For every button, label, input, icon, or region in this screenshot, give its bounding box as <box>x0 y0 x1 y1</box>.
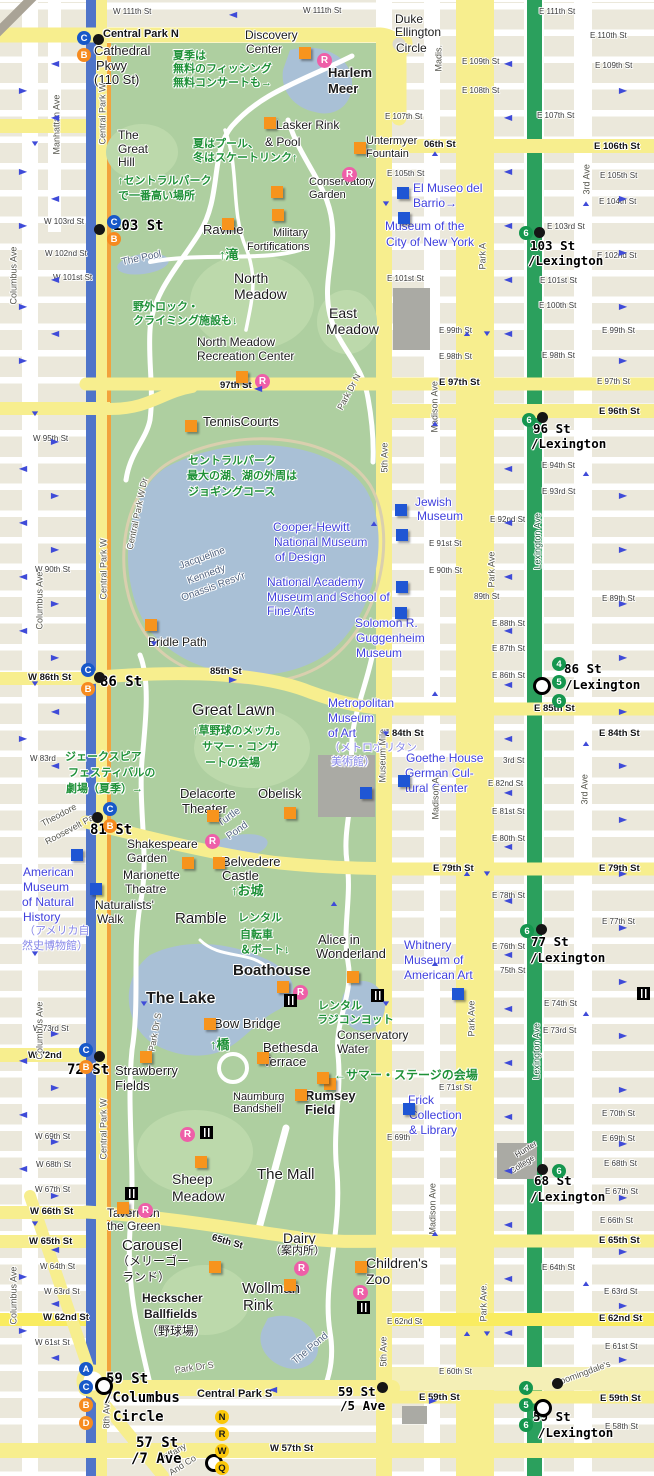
label-lexington-ave: Lexington Ave <box>533 1023 542 1079</box>
one-way-arrow-icon: ◀ <box>504 843 512 851</box>
one-way-arrow-icon: ▲ <box>430 420 441 428</box>
one-way-arrow-icon: ◀ <box>19 573 27 581</box>
one-way-arrow-icon: ◀ <box>504 735 512 743</box>
one-way-arrow-icon: ▶ <box>619 816 627 824</box>
label-boathouse: Boathouse <box>233 963 311 978</box>
subway-bullet-b: B <box>103 819 117 833</box>
one-way-arrow-icon: ▼ <box>381 730 392 738</box>
one-way-arrow-icon: ◀ <box>51 708 59 716</box>
poi-marker-icon <box>257 1052 269 1064</box>
label-museum: Museum <box>328 712 374 724</box>
label-label: 自転車 <box>240 930 273 941</box>
label-the-green: the Green <box>107 1220 160 1232</box>
museum-marker-icon <box>396 581 408 593</box>
label-jewish: Jewish <box>415 496 452 508</box>
label-american-art: American Art <box>404 969 473 981</box>
label-w-63rd-st: W 63rd St <box>44 1288 80 1296</box>
one-way-arrow-icon: ▶ <box>19 357 27 365</box>
label-conservatory: Conservatory <box>337 1029 408 1041</box>
one-way-arrow-icon: ▶ <box>19 303 27 311</box>
label-e-105th-st: E 105th St <box>387 170 424 178</box>
label-national-academy: National Academy <box>267 576 364 588</box>
label-meer: Meer <box>328 82 358 95</box>
label-fields: Fields <box>115 1079 150 1092</box>
museum-marker-icon <box>403 1103 415 1115</box>
subway-bullet-c: C <box>103 802 117 816</box>
one-way-arrow-icon: ▼ <box>482 1330 493 1338</box>
station-dot-icon <box>534 227 545 238</box>
express-station-icon <box>533 677 551 695</box>
label-e-65th-st: E 65th St <box>599 1236 640 1246</box>
museum-marker-icon <box>395 607 407 619</box>
label-walk: Walk <box>97 913 123 925</box>
one-way-arrow-icon: ◀ <box>504 1059 512 1067</box>
label-manhattan-ave: Manhattan Ave <box>53 95 62 155</box>
poi-marker-icon <box>284 807 296 819</box>
subway-bullet-5: 5 <box>519 1398 533 1412</box>
one-way-arrow-icon: ◀ <box>504 519 512 527</box>
subway-bullet-d: D <box>79 1416 93 1430</box>
poi-marker-icon <box>222 218 234 230</box>
label-label: （メリーゴー <box>117 1255 189 1267</box>
poi-marker-icon <box>117 1202 129 1214</box>
label-central-park-w: Central Park W <box>100 538 109 599</box>
label-of-natural: of Natural <box>22 896 74 908</box>
subway-bullet-6: 6 <box>552 694 566 708</box>
label-e-97th-st: E 97th St <box>439 378 480 388</box>
one-way-arrow-icon: ▲ <box>462 330 473 338</box>
label-label: サマー・コンサ <box>202 742 279 753</box>
subway-bullet-c: C <box>77 31 91 45</box>
one-way-arrow-icon: ▲ <box>430 960 441 968</box>
label-w-64th-st: W 64th St <box>40 1263 75 1271</box>
one-way-arrow-icon: ▶ <box>619 492 627 500</box>
label-circle: Circle <box>113 1410 164 1424</box>
label-label: ラジコンヨット <box>317 1015 394 1026</box>
label-e-98th-st: E 98th St <box>439 353 472 361</box>
restaurant-icon <box>200 1126 213 1139</box>
label-military: Military <box>273 228 308 239</box>
label-dairy: Dairy <box>283 1231 316 1245</box>
subway-bullet-b: B <box>79 1398 93 1412</box>
subway-bullet-6: 6 <box>520 924 534 938</box>
label-e-64th-st: E 64th St <box>542 1264 575 1272</box>
station-dot-icon <box>94 1051 105 1062</box>
label-e-96th-st: E 96th St <box>599 407 640 417</box>
label-park-ave: Park Ave <box>488 552 497 588</box>
station-dot-icon <box>537 1164 548 1175</box>
one-way-arrow-icon: ◀ <box>504 573 512 581</box>
museum-marker-icon <box>395 504 407 516</box>
one-way-arrow-icon: ◀ <box>51 762 59 770</box>
label-e-59th-st: E 59th St <box>419 1393 460 1403</box>
label-untermyer: Untermyer <box>366 136 417 147</box>
label-label: 野外ロック・ <box>133 302 199 313</box>
label-label: フェスティバルの <box>68 768 155 779</box>
label-garden: Garden <box>309 190 346 201</box>
station-dot-icon <box>94 672 105 683</box>
label-museum-and-school-of: Museum and School of <box>267 591 390 603</box>
restroom-icon: R <box>317 53 332 68</box>
label-the: The <box>118 129 139 141</box>
label-96-st: 96 St <box>533 423 571 436</box>
subway-bullet-b: B <box>107 232 121 246</box>
label-of-art: of Art <box>328 727 356 739</box>
one-way-arrow-icon: ▶ <box>619 1356 627 1364</box>
subway-bullet-n: N <box>215 1410 229 1424</box>
subway-bullet-w: W <box>215 1444 229 1458</box>
label-theatre: Theatre <box>125 883 166 895</box>
label-e-106th-st: E 106th St <box>594 142 640 152</box>
subway-bullet-c: C <box>79 1380 93 1394</box>
poi-marker-icon <box>272 209 284 221</box>
one-way-arrow-icon: ▶ <box>619 1086 627 1094</box>
label-e-73rd-st: E 73rd St <box>543 1027 576 1035</box>
one-way-arrow-icon: ◀ <box>51 60 59 68</box>
one-way-arrow-icon: ▶ <box>619 1248 627 1256</box>
one-way-arrow-icon: ▶ <box>619 924 627 932</box>
one-way-arrow-icon: ▶ <box>51 1192 59 1200</box>
label-label: （野球場） <box>146 1325 206 1337</box>
restroom-icon: R <box>342 167 357 182</box>
label-metropolitan: Metropolitan <box>328 697 394 709</box>
one-way-arrow-icon: ◀ <box>504 465 512 473</box>
label-w-72nd: W 72nd <box>28 1051 62 1061</box>
label-e-97th-st: E 97th St <box>597 378 630 386</box>
label-columbus-ave: Columbus Ave <box>36 572 45 630</box>
label-e-104th-st: E 104th St <box>599 198 636 206</box>
label-e-91st-st: E 91st St <box>429 540 461 548</box>
label-museum: Museum <box>23 881 69 893</box>
subway-bullet-r: R <box>215 1427 229 1441</box>
one-way-arrow-icon: ▲ <box>581 1010 592 1018</box>
label-e-62nd-st: E 62nd St <box>599 1314 642 1324</box>
subway-bullet-c: C <box>107 215 121 229</box>
label-park-a: Park A <box>479 243 488 270</box>
label-e-109th-st: E 109th St <box>595 62 632 70</box>
one-way-arrow-icon: ◀ <box>51 114 59 122</box>
label-madison-ave: Madison Ave <box>429 1183 438 1234</box>
one-way-arrow-icon: ▶ <box>619 357 627 365</box>
one-way-arrow-icon: ▶ <box>619 600 627 608</box>
one-way-arrow-icon: ◀ <box>504 627 512 635</box>
label-label: クライミング施設も↓ <box>133 316 238 327</box>
label-bethesda: Bethesda <box>263 1041 318 1054</box>
label-barrio: Barrio→ <box>413 197 457 209</box>
one-way-arrow-icon: ◀ <box>51 1354 59 1362</box>
museum-marker-icon <box>397 187 409 199</box>
label-naturalists: Naturalists' <box>95 899 154 911</box>
label-e-103rd-st: E 103rd St <box>547 223 585 231</box>
label-theater: Theater <box>182 802 227 815</box>
label-label: （メトロポリタン <box>329 743 417 754</box>
label-columbus-ave: Columbus Ave <box>36 1002 45 1060</box>
poi-marker-icon <box>209 1261 221 1273</box>
label-lexington: /Lexington <box>565 679 640 692</box>
label-label: 冬はスケートリンク↑ <box>193 153 298 164</box>
museum-marker-icon <box>398 775 410 787</box>
label-label: レンタル <box>238 913 282 924</box>
label-strawberry: Strawberry <box>115 1064 178 1077</box>
label-label: （案内所） <box>270 1246 325 1257</box>
one-way-arrow-icon: ▲ <box>430 150 441 158</box>
label-great-lawn: Great Lawn <box>192 703 275 719</box>
label-w-68th-st: W 68th St <box>36 1161 71 1169</box>
one-way-arrow-icon: ▶ <box>229 676 237 684</box>
one-way-arrow-icon: ▶ <box>51 438 59 446</box>
label-lexington: /Lexington <box>530 1191 605 1204</box>
label-bow-bridge: Bow Bridge <box>214 1017 280 1030</box>
label-museum: Museum <box>417 510 463 522</box>
express-station-icon <box>534 1399 552 1417</box>
label-whitnery: Whitnery <box>404 939 451 951</box>
label-duke: Duke <box>395 13 423 25</box>
poi-marker-icon <box>264 117 276 129</box>
one-way-arrow-icon: ▲ <box>430 1230 441 1238</box>
label-heckscher: Heckscher <box>142 1292 203 1304</box>
one-way-arrow-icon: ◀ <box>504 114 512 122</box>
label-terrace: Terrace <box>263 1055 306 1068</box>
one-way-arrow-icon: ▶ <box>51 654 59 662</box>
one-way-arrow-icon: ▶ <box>619 654 627 662</box>
label-madis: Madis. <box>435 45 444 72</box>
label-children-s: Children's <box>366 1256 428 1270</box>
subway-bullet-4: 4 <box>519 1381 533 1395</box>
label-label: ↑橋 <box>210 1038 230 1051</box>
one-way-arrow-icon: ▶ <box>619 1032 627 1040</box>
one-way-arrow-icon: ▶ <box>619 708 627 716</box>
label-belvedere: Belvedere <box>222 855 281 868</box>
one-way-arrow-icon: ▶ <box>51 1084 59 1092</box>
one-way-arrow-icon: ▲ <box>430 690 441 698</box>
one-way-arrow-icon: ◀ <box>504 276 512 284</box>
label-label: 無料のフィッシング <box>173 64 272 75</box>
poi-marker-icon <box>185 420 197 432</box>
one-way-arrow-icon: ▼ <box>381 1000 392 1008</box>
label-obelisk: Obelisk <box>258 787 301 800</box>
subway-bullet-6: 6 <box>519 226 533 240</box>
label-pool: & Pool <box>265 136 300 148</box>
one-way-arrow-icon: ▼ <box>482 870 493 878</box>
label-discovery: Discovery <box>245 29 298 41</box>
one-way-arrow-icon: ▶ <box>19 222 27 230</box>
label-columbus-ave: Columbus Ave <box>10 247 19 305</box>
one-way-arrow-icon: ▼ <box>30 950 41 958</box>
poi-marker-icon <box>317 1072 329 1084</box>
one-way-arrow-icon: ▶ <box>619 1194 627 1202</box>
label-e-107th-st: E 107th St <box>385 113 422 121</box>
label-columbus: /Columbus <box>104 1391 180 1405</box>
poi-marker-icon <box>207 810 219 822</box>
label-68-st: 68 St <box>534 1175 572 1188</box>
label-e-68th-st: E 68th St <box>604 1160 637 1168</box>
label-harlem: Harlem <box>328 66 372 79</box>
label-e-108th-st: E 108th St <box>462 87 499 95</box>
museum-marker-icon <box>71 849 83 861</box>
label-carousel: Carousel <box>122 1238 182 1253</box>
label-american: American <box>23 866 74 878</box>
one-way-arrow-icon: ◀ <box>504 1275 512 1283</box>
one-way-arrow-icon: ▼ <box>482 330 493 338</box>
label-59-st: 59 St <box>338 1386 376 1399</box>
label-e-90th-st: E 90th St <box>429 567 462 575</box>
one-way-arrow-icon: ▶ <box>619 195 627 203</box>
label-e-82nd-st: E 82nd St <box>488 780 523 788</box>
label-east: East <box>329 306 357 320</box>
label-label: ジョギングコース <box>188 487 275 498</box>
one-way-arrow-icon: ◀ <box>504 1167 512 1175</box>
label-5-ave: /5 Ave <box>340 1400 385 1413</box>
label-central-park-n: Central Park N <box>103 29 179 40</box>
label-label: ←サマー・ステージの会場 <box>334 1069 478 1081</box>
label-103-st: 103 St <box>530 240 575 253</box>
one-way-arrow-icon: ▶ <box>429 1397 437 1405</box>
museum-marker-icon <box>398 212 410 224</box>
label-w-111th-st: W 111th St <box>303 7 341 15</box>
label-label: ートの会場 <box>205 758 260 769</box>
label-ramble: Ramble <box>175 911 227 926</box>
one-way-arrow-icon: ◀ <box>504 681 512 689</box>
label-e-110th-st: E 110th St <box>590 32 627 40</box>
one-way-arrow-icon: ◀ <box>19 1111 27 1119</box>
poi-marker-icon <box>271 186 283 198</box>
label-collection: Collection <box>409 1109 462 1121</box>
label-fine-arts: Fine Arts <box>267 605 314 617</box>
one-way-arrow-icon: ▶ <box>51 1138 59 1146</box>
label-label: セントラルパーク <box>188 456 276 467</box>
one-way-arrow-icon: ◀ <box>504 168 512 176</box>
one-way-arrow-icon: ◀ <box>19 627 27 635</box>
label-label: 夏季は <box>173 51 206 62</box>
label-park-ave: Park Ave <box>468 1001 477 1037</box>
one-way-arrow-icon: ◀ <box>504 60 512 68</box>
label-pkwy: Pkwy <box>96 59 127 72</box>
poi-marker-icon <box>195 1156 207 1168</box>
station-dot-icon <box>93 34 104 45</box>
label-north: North <box>234 271 268 285</box>
one-way-arrow-icon: ◀ <box>504 897 512 905</box>
label-wonderland: Wonderland <box>316 947 386 960</box>
label-w-66th-st: W 66th St <box>30 1207 73 1217</box>
label-e-70th-st: E 70th St <box>602 1110 635 1118</box>
label-e-93rd-st: E 93rd St <box>542 488 575 496</box>
label-lexington: /Lexington <box>528 255 603 268</box>
label-lexington: /Lexington <box>531 438 606 451</box>
label-3rd-ave: 3rd Ave <box>583 164 592 194</box>
label-of-design: of Design <box>275 551 326 563</box>
poi-marker-icon <box>295 1089 307 1101</box>
one-way-arrow-icon: ▼ <box>30 140 41 148</box>
museum-marker-icon <box>452 988 464 1000</box>
label-zoo: Zoo <box>366 1272 390 1286</box>
one-way-arrow-icon: ▶ <box>619 546 627 554</box>
label-89th-st: 89th St <box>474 593 499 601</box>
label-city-of-new-york: City of New York <box>386 236 474 248</box>
label-shakespeare: Shakespeare <box>127 838 198 850</box>
label-3rd-st: 3rd St <box>503 757 524 765</box>
station-dot-icon <box>537 412 548 423</box>
one-way-arrow-icon: ◀ <box>51 1246 59 1254</box>
poi-marker-icon <box>299 47 311 59</box>
label-delacorte: Delacorte <box>180 787 236 800</box>
subway-bullet-c: C <box>81 663 95 677</box>
one-way-arrow-icon: ▲ <box>581 200 592 208</box>
one-way-arrow-icon: ◀ <box>51 1300 59 1308</box>
one-way-arrow-icon: ◀ <box>504 951 512 959</box>
label-e-71st-st: E 71st St <box>439 1084 471 1092</box>
subway-bullet-c: C <box>79 1043 93 1057</box>
poi-marker-icon <box>140 1051 152 1063</box>
label-e-87th-st: E 87th St <box>492 645 525 653</box>
poi-marker-icon <box>145 619 157 631</box>
one-way-arrow-icon: ▶ <box>619 87 627 95</box>
label-madison-a: Madison A. <box>432 775 441 820</box>
label-lexington: /Lexington <box>538 1427 613 1440</box>
label-w-62nd-st: W 62nd St <box>43 1313 89 1323</box>
label-el-museo-del: El Museo del <box>413 182 482 194</box>
one-way-arrow-icon: ▲ <box>462 1330 473 1338</box>
label-5th-ave: 5th Ave <box>381 443 390 473</box>
label-great: Great <box>118 143 148 155</box>
label-history: History <box>23 911 60 923</box>
station-dot-icon <box>94 224 105 235</box>
label-w-111th-st: W 111th St <box>113 8 151 16</box>
label-e-101st-st: E 101st St <box>387 275 424 283</box>
one-way-arrow-icon: ◀ <box>19 465 27 473</box>
label-label: ↑滝 <box>219 248 239 261</box>
poi-marker-icon <box>182 857 194 869</box>
one-way-arrow-icon: ◀ <box>504 1329 512 1337</box>
subway-bullet-b: B <box>77 48 91 62</box>
label-e-62nd-st: E 62nd St <box>387 1318 422 1326</box>
label-3rd-ave: 3rd Ave <box>581 774 590 804</box>
label-marionette: Marionette <box>123 869 180 881</box>
label-label: ジェークスピア <box>65 752 142 763</box>
one-way-arrow-icon: ◀ <box>51 276 59 284</box>
label-columbus-ave: Columbus Ave <box>10 1267 19 1325</box>
poi-marker-icon <box>236 371 248 383</box>
label-central-park-w: Central Park W <box>100 1098 109 1159</box>
label-meadow: Meadow <box>172 1189 225 1203</box>
label-meadow: Meadow <box>326 322 379 336</box>
one-way-arrow-icon: ▶ <box>619 303 627 311</box>
label-conservatory: Conservatory <box>309 177 374 188</box>
label-goethe-house: Goethe House <box>406 752 483 764</box>
label-the-lake: The Lake <box>146 991 215 1007</box>
poi-marker-icon <box>354 142 366 154</box>
label-library: & Library <box>409 1124 457 1136</box>
label-e-84th-st: E 84th St <box>599 729 640 739</box>
subway-bullet-6: 6 <box>552 1164 566 1178</box>
label-e-111th-st: E 111th St <box>539 8 575 16</box>
central-park-map[interactable]: W 111th StW 111th StCentral Park NCathed… <box>0 0 654 1476</box>
one-way-arrow-icon: ▼ <box>381 200 392 208</box>
label-ballfields: Ballfields <box>144 1308 197 1320</box>
subway-bullet-q: Q <box>215 1461 229 1475</box>
one-way-arrow-icon: ◀ <box>504 789 512 797</box>
one-way-arrow-icon: ▶ <box>19 735 27 743</box>
label-label: 劇場（夏季）→ <box>66 784 143 795</box>
label-label: ↑お城 <box>231 884 264 897</box>
label-recreation-center: Recreation Center <box>197 350 294 362</box>
poi-marker-icon <box>355 1261 367 1273</box>
subway-bullet-6: 6 <box>522 413 536 427</box>
label-label: ↑セントラルパーク <box>118 176 212 187</box>
one-way-arrow-icon: ◀ <box>254 385 262 393</box>
label-museum-of-the: Museum of the <box>385 220 464 232</box>
restroom-icon: R <box>138 1203 153 1218</box>
label-e-98th-st: E 98th St <box>542 352 575 360</box>
